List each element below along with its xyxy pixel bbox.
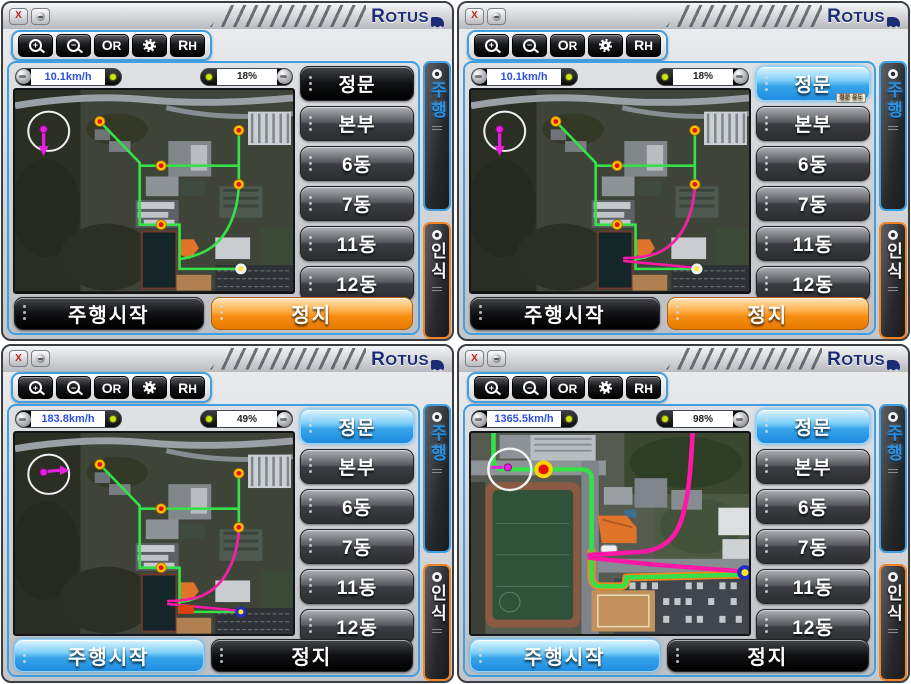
screenshot-grid: X ROTUS + − OR: [0, 0, 911, 684]
destination-label: 본부: [795, 453, 832, 480]
destination-label: 12동: [336, 613, 378, 640]
destination-button[interactable]: 본부: [300, 106, 414, 141]
map-view[interactable]: [13, 431, 295, 637]
rotus-logo-text: ROTUS: [371, 6, 429, 28]
tab-grip-icon: [432, 126, 442, 131]
knob-icon: [16, 69, 31, 84]
action-row: 주행시작 정지: [469, 294, 870, 331]
tab-grip-icon: [888, 629, 898, 634]
rotus-logo: ROTUS: [827, 349, 900, 371]
titlebar-vent-decoration: [210, 348, 366, 370]
destination-label: 본부: [339, 453, 376, 480]
destination-label: 11동: [337, 573, 378, 600]
robot-ball-icon: [36, 354, 45, 363]
action-row: 주행시작 정지: [13, 636, 414, 673]
stop-button-label: 정지: [291, 641, 332, 670]
destination-list: 정문 정문 유도 본부 6동 7동: [756, 408, 870, 637]
zoom-out-button[interactable]: −: [512, 376, 547, 399]
map-view[interactable]: [13, 88, 295, 294]
status-row: 10.1km/h 18%: [469, 65, 751, 88]
main-content: 10.1km/h 18%: [7, 61, 420, 335]
destination-button[interactable]: 본부: [756, 106, 870, 141]
destination-label: 7동: [342, 533, 372, 560]
map-view[interactable]: [469, 431, 751, 637]
grip-dots-icon: [479, 648, 482, 664]
speed-value: 10.1km/h: [487, 69, 561, 85]
minimize-button[interactable]: [31, 350, 50, 367]
destination-label: 6동: [798, 150, 828, 177]
stop-button-label: 정지: [747, 299, 788, 328]
or-button[interactable]: OR: [94, 376, 129, 399]
status-led-icon: [110, 416, 116, 422]
destination-label: 7동: [798, 533, 828, 560]
or-button-label: OR: [558, 380, 578, 396]
zoom-out-icon: −: [523, 39, 536, 52]
toolbar-button-group: + − OR RH: [11, 30, 212, 61]
progress-value: 18%: [673, 69, 733, 85]
destination-label: 12동: [336, 270, 378, 297]
stop-button[interactable]: 정지: [211, 639, 413, 672]
rh-button-label: RH: [178, 37, 197, 53]
destination-label: 본부: [795, 110, 832, 137]
tab-drive-label: 주행: [885, 81, 902, 121]
rotus-logo-text: ROTUS: [371, 349, 429, 371]
satellite-map-overview: [471, 90, 749, 292]
speed-indicator: 10.1km/h: [15, 68, 122, 86]
or-button[interactable]: OR: [94, 34, 129, 57]
stop-button[interactable]: 정지: [667, 639, 869, 672]
start-button-label: 주행시작: [524, 299, 606, 328]
app-window-1: X ROTUS + − OR: [1, 1, 454, 341]
grip-dots-icon: [765, 538, 768, 554]
zoom-in-button[interactable]: +: [18, 376, 53, 399]
side-tab-strip: 주행 인식: [422, 404, 452, 682]
zoom-out-icon: −: [67, 381, 80, 394]
grip-dots-icon: [309, 196, 312, 212]
robot-ball-icon: [492, 354, 501, 363]
status-led-icon: [662, 416, 668, 422]
start-button[interactable]: 주행시작: [14, 297, 204, 330]
destination-button[interactable]: 6동: [300, 489, 414, 524]
progress-indicator: 18%: [200, 68, 293, 86]
satellite-map-zoomed: [471, 433, 749, 635]
tab-indicator-icon: [432, 69, 442, 79]
destination-label: 11동: [793, 230, 834, 257]
destination-button[interactable]: 7동: [300, 529, 414, 564]
title-bar: X ROTUS: [459, 3, 908, 29]
speed-indicator: 183.8km/h: [15, 410, 122, 428]
tab-recognize[interactable]: 인식: [423, 222, 451, 339]
main-content: 10.1km/h 18%: [463, 61, 876, 335]
or-button-label: OR: [558, 37, 578, 53]
destination-button[interactable]: 7동: [300, 186, 414, 221]
status-led-icon: [566, 416, 572, 422]
zoom-in-button[interactable]: +: [474, 376, 509, 399]
grip-dots-icon: [765, 618, 768, 634]
grip-dots-icon: [676, 305, 679, 321]
destination-label: 7동: [798, 190, 828, 217]
grip-dots-icon: [309, 498, 312, 514]
destination-label: 정문: [339, 413, 376, 440]
destination-button[interactable]: 정문 정문 유도: [756, 66, 870, 101]
destination-list: 정문 정문 유도 본부 6동 7동: [300, 408, 414, 637]
grip-dots-icon: [309, 418, 312, 434]
tab-indicator-icon: [888, 412, 898, 422]
speed-value: 1365.5km/h: [487, 411, 561, 427]
grip-dots-icon: [309, 538, 312, 554]
settings-button[interactable]: [132, 376, 167, 399]
progress-indicator: 18%: [656, 68, 749, 86]
rotus-logo: ROTUS: [827, 6, 900, 28]
destination-label: 6동: [342, 493, 372, 520]
zoom-out-button[interactable]: −: [56, 376, 91, 399]
tab-recognize-label: 인식: [429, 242, 446, 282]
title-bar: X ROTUS: [459, 346, 908, 372]
rh-button[interactable]: RH: [626, 34, 661, 57]
gear-icon: [599, 381, 612, 394]
close-button[interactable]: X: [9, 350, 28, 367]
main-content: 183.8km/h 49%: [7, 404, 420, 678]
progress-value: 18%: [217, 69, 277, 85]
tab-drive-label: 주행: [429, 81, 446, 121]
destination-button[interactable]: 본부: [756, 449, 870, 484]
tab-grip-icon: [888, 287, 898, 292]
destination-button[interactable]: 정문 정문 유도: [756, 409, 870, 444]
title-bar: X ROTUS: [3, 3, 452, 29]
start-button-label: 주행시작: [524, 641, 606, 670]
zoom-in-icon: +: [485, 39, 498, 52]
speed-value: 10.1km/h: [31, 69, 105, 85]
grip-dots-icon: [23, 305, 26, 321]
destination-label: 7동: [342, 190, 372, 217]
grip-dots-icon: [765, 418, 768, 434]
close-button[interactable]: X: [465, 350, 484, 367]
destination-label: 정문: [339, 70, 376, 97]
tab-drive[interactable]: 주행: [423, 61, 451, 211]
close-button[interactable]: X: [465, 8, 484, 25]
tab-drive[interactable]: 주행: [879, 404, 907, 554]
destination-button[interactable]: 본부: [300, 449, 414, 484]
active-route-badge: 정문 유도: [836, 93, 866, 103]
grip-dots-icon: [765, 236, 768, 252]
tab-grip-icon: [888, 469, 898, 474]
start-button-label: 주행시작: [68, 641, 150, 670]
satellite-map-overview: [15, 90, 293, 292]
or-button-label: OR: [102, 37, 122, 53]
stop-button-label: 정지: [747, 641, 788, 670]
tab-grip-icon: [432, 287, 442, 292]
tab-grip-icon: [888, 126, 898, 131]
start-button[interactable]: 주행시작: [470, 639, 660, 672]
speed-indicator: 1365.5km/h: [471, 410, 578, 428]
tab-drive[interactable]: 주행: [879, 61, 907, 211]
rh-button-label: RH: [634, 380, 653, 396]
knob-icon: [733, 412, 748, 427]
grip-dots-icon: [676, 648, 679, 664]
destination-label: 6동: [798, 493, 828, 520]
side-tab-strip: 주행 인식: [878, 61, 908, 339]
destination-button[interactable]: 11동: [756, 569, 870, 604]
progress-value: 98%: [673, 411, 733, 427]
tab-indicator-icon: [888, 69, 898, 79]
robot-icon: [887, 17, 900, 27]
rh-button-label: RH: [634, 37, 653, 53]
grip-dots-icon: [765, 76, 768, 92]
app-window-3: X ROTUS + − OR: [1, 344, 454, 684]
minimize-button[interactable]: [31, 8, 50, 25]
destination-button[interactable]: 6동: [756, 489, 870, 524]
toolbar: + − OR RH: [3, 372, 452, 404]
robot-icon: [887, 360, 900, 370]
tab-recognize-label: 인식: [429, 584, 446, 624]
action-row: 주행시작 정지: [469, 636, 870, 673]
grip-dots-icon: [765, 116, 768, 132]
destination-label: 12동: [792, 270, 834, 297]
destination-button[interactable]: 7동: [756, 186, 870, 221]
destination-button[interactable]: 정문 정문 유도: [300, 409, 414, 444]
rh-button[interactable]: RH: [170, 34, 205, 57]
titlebar-vent-decoration: [666, 5, 822, 27]
tab-recognize-label: 인식: [885, 584, 902, 624]
minimize-button[interactable]: [487, 350, 506, 367]
settings-button[interactable]: [132, 34, 167, 57]
tab-recognize[interactable]: 인식: [879, 222, 907, 339]
zoom-in-icon: +: [29, 381, 42, 394]
titlebar-vent-decoration: [666, 348, 822, 370]
destination-button[interactable]: 정문 정문 유도: [300, 66, 414, 101]
rh-button[interactable]: RH: [626, 376, 661, 399]
toolbar-button-group: + − OR RH: [467, 30, 668, 61]
toolbar: + − OR RH: [3, 29, 452, 61]
zoom-in-button[interactable]: +: [18, 34, 53, 57]
destination-label: 11동: [793, 573, 834, 600]
gear-icon: [143, 39, 156, 52]
toolbar-button-group: + − OR RH: [467, 372, 668, 403]
destination-label: 6동: [342, 150, 372, 177]
speed-value: 183.8km/h: [31, 411, 105, 427]
knob-icon: [277, 69, 292, 84]
status-led-icon: [110, 74, 116, 80]
app-window-4: X ROTUS + − OR: [457, 344, 910, 684]
destination-label: 정문: [795, 413, 832, 440]
rh-button[interactable]: RH: [170, 376, 205, 399]
zoom-out-icon: −: [523, 381, 536, 394]
minimize-button[interactable]: [487, 8, 506, 25]
app-window-2: X ROTUS + − OR: [457, 1, 910, 341]
toolbar: + − OR RH: [459, 29, 908, 61]
zoom-out-button[interactable]: −: [56, 34, 91, 57]
settings-button[interactable]: [588, 34, 623, 57]
status-led-icon: [206, 74, 212, 80]
zoom-out-button[interactable]: −: [512, 34, 547, 57]
robot-ball-icon: [36, 12, 45, 21]
goal-marker: [235, 263, 246, 274]
title-bar: X ROTUS: [3, 346, 452, 372]
robot-icon: [431, 360, 444, 370]
stop-button[interactable]: 정지: [211, 297, 413, 330]
grip-dots-icon: [220, 648, 223, 664]
grip-dots-icon: [765, 498, 768, 514]
rh-button-label: RH: [178, 380, 197, 396]
speed-indicator: 10.1km/h: [471, 68, 578, 86]
destination-button[interactable]: 11동: [300, 569, 414, 604]
progress-indicator: 98%: [656, 410, 749, 428]
toolbar: + − OR RH: [459, 372, 908, 404]
destination-list: 정문 정문 유도 본부 6동 7동: [300, 65, 414, 294]
knob-icon: [277, 412, 292, 427]
destination-button[interactable]: 12동: [300, 266, 414, 301]
grip-dots-icon: [765, 458, 768, 474]
or-button[interactable]: OR: [550, 34, 585, 57]
status-row: 1365.5km/h 98%: [469, 408, 751, 431]
tab-grip-icon: [432, 469, 442, 474]
grip-dots-icon: [309, 156, 312, 172]
goal-marker: [691, 263, 702, 274]
grip-dots-icon: [309, 618, 312, 634]
zoom-out-icon: −: [67, 39, 80, 52]
stop-button-label: 정지: [291, 299, 332, 328]
grip-dots-icon: [220, 305, 223, 321]
side-tab-strip: 주행 인식: [422, 61, 452, 339]
stop-button[interactable]: 정지: [667, 297, 869, 330]
grip-dots-icon: [765, 196, 768, 212]
destination-list: 정문 정문 유도 본부 6동 7동: [756, 65, 870, 294]
robot-ball-icon: [492, 12, 501, 21]
status-row: 10.1km/h 18%: [13, 65, 295, 88]
tab-indicator-icon: [432, 412, 442, 422]
close-button[interactable]: X: [9, 8, 28, 25]
tab-indicator-icon: [432, 572, 442, 582]
zoom-in-icon: +: [29, 39, 42, 52]
gear-icon: [143, 381, 156, 394]
tab-grip-icon: [432, 629, 442, 634]
tab-indicator-icon: [888, 572, 898, 582]
titlebar-vent-decoration: [210, 5, 366, 27]
status-row: 183.8km/h 49%: [13, 408, 295, 431]
tab-recognize[interactable]: 인식: [423, 564, 451, 681]
grip-dots-icon: [309, 236, 312, 252]
highlighted-segment: [179, 605, 194, 614]
rotus-logo: ROTUS: [371, 6, 444, 28]
tab-indicator-icon: [888, 230, 898, 240]
destination-button[interactable]: 7동: [756, 529, 870, 564]
knob-icon: [472, 412, 487, 427]
start-button[interactable]: 주행시작: [14, 639, 204, 672]
rotus-logo-text: ROTUS: [827, 349, 885, 371]
destination-label: 11동: [337, 230, 378, 257]
gear-icon: [599, 39, 612, 52]
main-content: 1365.5km/h 98%: [463, 404, 876, 678]
grip-dots-icon: [765, 276, 768, 292]
tab-recognize[interactable]: 인식: [879, 564, 907, 681]
grip-dots-icon: [765, 156, 768, 172]
grip-dots-icon: [23, 648, 26, 664]
destination-button[interactable]: 11동: [756, 226, 870, 261]
grip-dots-icon: [765, 578, 768, 594]
knob-icon: [733, 69, 748, 84]
tab-drive[interactable]: 주행: [423, 404, 451, 554]
grip-dots-icon: [309, 116, 312, 132]
destination-label: 12동: [792, 613, 834, 640]
status-led-icon: [566, 74, 572, 80]
side-tab-strip: 주행 인식: [878, 404, 908, 682]
tab-drive-label: 주행: [429, 424, 446, 464]
destination-button[interactable]: 11동: [300, 226, 414, 261]
progress-indicator: 49%: [200, 410, 293, 428]
rotus-logo-text: ROTUS: [827, 6, 885, 28]
grip-dots-icon: [309, 76, 312, 92]
destination-label: 정문: [795, 70, 832, 97]
start-button-label: 주행시작: [68, 299, 150, 328]
knob-icon: [16, 412, 31, 427]
grip-dots-icon: [309, 276, 312, 292]
knob-icon: [472, 69, 487, 84]
map-view[interactable]: [469, 88, 751, 294]
tab-indicator-icon: [432, 230, 442, 240]
action-row: 주행시작 정지: [13, 294, 414, 331]
waypoint-marker: [534, 460, 552, 478]
grip-dots-icon: [479, 305, 482, 321]
zoom-in-icon: +: [485, 381, 498, 394]
toolbar-button-group: + − OR RH: [11, 372, 212, 403]
destination-button[interactable]: 12동: [756, 266, 870, 301]
destination-button[interactable]: 6동: [300, 146, 414, 181]
grip-dots-icon: [309, 458, 312, 474]
tab-drive-label: 주행: [885, 424, 902, 464]
satellite-map-overview: [15, 433, 293, 635]
progress-value: 49%: [217, 411, 277, 427]
settings-button[interactable]: [588, 376, 623, 399]
grip-dots-icon: [309, 578, 312, 594]
goal-marker: [235, 606, 246, 617]
rotus-logo: ROTUS: [371, 349, 444, 371]
or-button[interactable]: OR: [550, 376, 585, 399]
tab-recognize-label: 인식: [885, 242, 902, 282]
status-led-icon: [206, 416, 212, 422]
destination-label: 본부: [339, 110, 376, 137]
status-led-icon: [662, 74, 668, 80]
robot-icon: [431, 17, 444, 27]
start-button[interactable]: 주행시작: [470, 297, 660, 330]
destination-button[interactable]: 6동: [756, 146, 870, 181]
zoom-in-button[interactable]: +: [474, 34, 509, 57]
or-button-label: OR: [102, 380, 122, 396]
